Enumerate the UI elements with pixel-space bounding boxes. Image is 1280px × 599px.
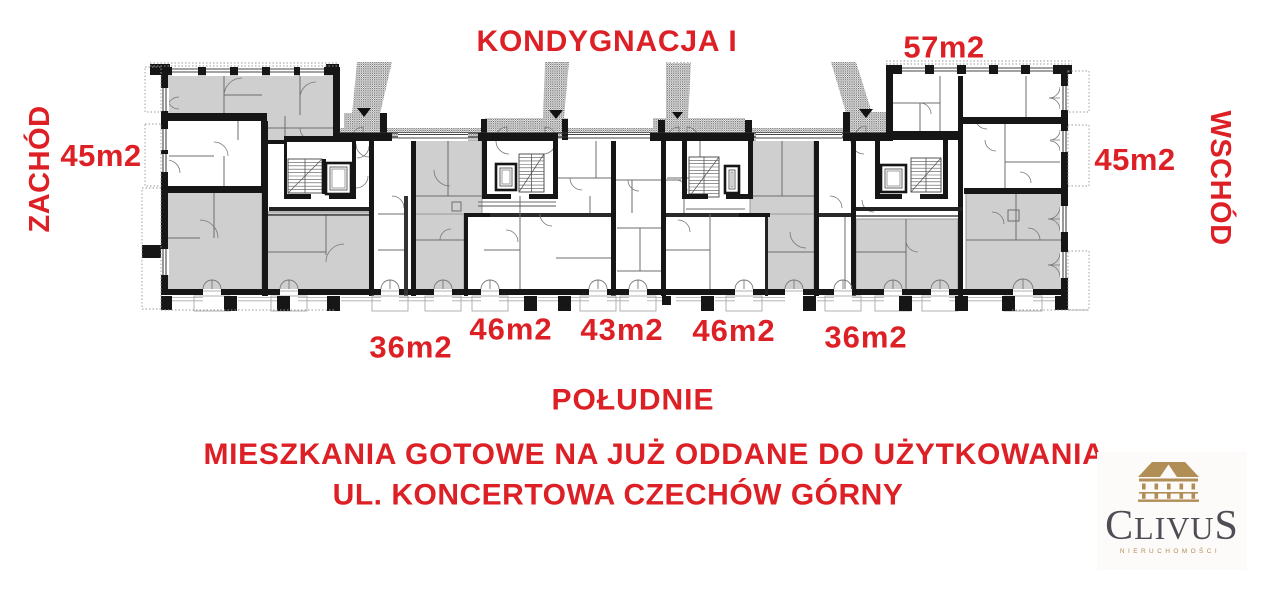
svg-text:46m2: 46m2 — [469, 312, 552, 347]
svg-text:46m2: 46m2 — [692, 313, 775, 348]
svg-text:45m2: 45m2 — [60, 138, 141, 173]
svg-text:43m2: 43m2 — [580, 312, 663, 347]
svg-text:UL. KONCERTOWA CZECHÓW GÓRNY: UL. KONCERTOWA CZECHÓW GÓRNY — [333, 478, 904, 512]
svg-text:CLIVUS: CLIVUS — [1105, 503, 1239, 549]
svg-text:45m2: 45m2 — [1094, 142, 1175, 177]
svg-text:WSCHÓD: WSCHÓD — [1204, 110, 1238, 245]
svg-text:MIESZKANIA GOTOWE NA JUŻ ODDAN: MIESZKANIA GOTOWE NA JUŻ ODDANE DO UŻYTK… — [203, 438, 1104, 471]
svg-text:ZACHÓD: ZACHÓD — [22, 105, 56, 232]
svg-text:36m2: 36m2 — [369, 330, 452, 365]
svg-text:57m2: 57m2 — [903, 30, 984, 65]
svg-text:NIERUCHOMOŚCI: NIERUCHOMOŚCI — [1120, 546, 1220, 555]
svg-text:KONDYGNACJA I: KONDYGNACJA I — [477, 25, 738, 58]
svg-text:36m2: 36m2 — [824, 320, 907, 355]
svg-text:POŁUDNIE: POŁUDNIE — [551, 384, 714, 417]
